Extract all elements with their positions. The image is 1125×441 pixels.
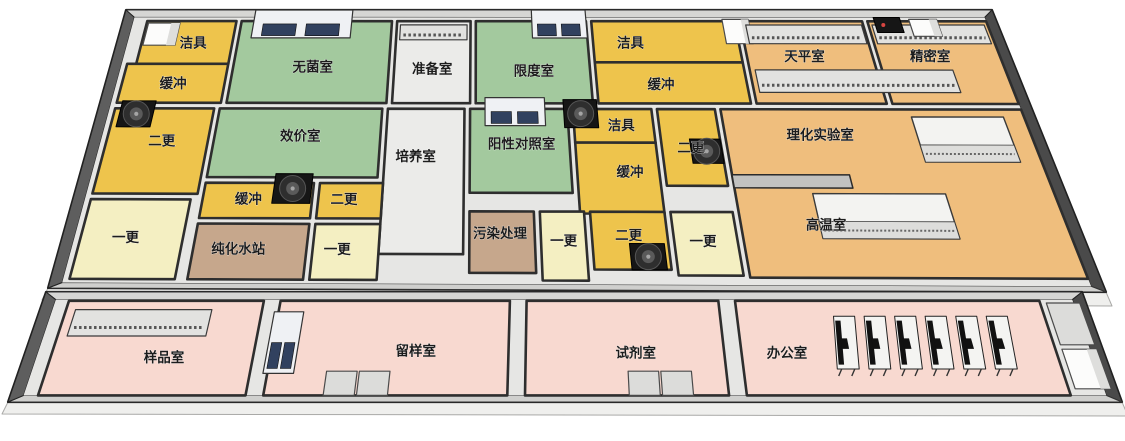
fan-center [291,186,295,190]
room-label-xiandushi: 限度室 [514,63,555,80]
room-label-ergeng-2: 二更 [677,140,705,156]
room-label-jieju-2: 洁具 [617,35,645,52]
room-jieju-2 [591,21,743,62]
room-label-huanchong-1: 缓冲 [160,75,187,92]
equip-bench-hatched [400,25,468,40]
outer-wall-top-annex [46,292,1082,300]
room-label-yigeng-3: 一更 [550,233,578,249]
room-label-shijishi: 试剂室 [616,345,657,362]
equip-bench-hatched [67,310,212,336]
room-label-peiyangshi: 培养室 [395,148,436,165]
room-label-ergeng-1: 二更 [148,134,175,150]
room-label-chunhuashuizhan: 纯化水站 [211,241,265,258]
floorplan-canvas: 洁具缓冲无菌室准备室限度室洁具缓冲天平室精密室二更效价室培养室阳性对照室洁具缓冲… [0,0,1125,441]
room-label-tianpingshi: 天平室 [784,48,825,65]
room-label-huanchong-2: 缓冲 [648,76,675,93]
floorplan-svg: 洁具缓冲无菌室准备室限度室洁具缓冲天平室精密室二更效价室培养室阳性对照室洁具缓冲… [0,0,1125,441]
room-label-jingmishi: 精密室 [910,48,951,65]
room-ergeng-1 [92,108,214,194]
room-label-bangongshi: 办公室 [767,345,808,362]
room-label-huanchong-3: 缓冲 [617,164,644,181]
room-label-lihuashiyanshi: 理化实验室 [786,127,854,144]
room-label-wujunshi: 无菌室 [292,59,334,76]
room-label-ergeng-4: 二更 [615,228,643,244]
room-label-yigeng-1: 一更 [112,230,139,246]
room-label-huanchong-4: 缓冲 [235,191,262,208]
instrument-indicator-light [881,23,885,27]
fan-center [134,112,138,116]
room-label-yigeng-4: 一更 [690,234,718,250]
fan-center [579,112,583,116]
room-label-liuyangshi: 留样室 [396,342,437,359]
partition-wall [732,175,853,188]
room-wuranchuli [469,211,536,273]
room-label-zhunbeishi: 准备室 [412,61,453,78]
equip-bench-hatched [746,25,867,44]
room-label-jieju-3: 洁具 [608,117,635,134]
cabinet-front-panel [491,112,512,124]
fan-center [646,255,650,259]
cabinet-front-panel [561,24,580,36]
room-label-yigeng-2: 一更 [324,242,351,258]
cabinet-front-panel [517,112,538,124]
room-label-jieju-1: 洁具 [180,34,207,51]
room-label-free-0: 高温室 [806,216,847,233]
equip-gray-cabinet [661,371,694,395]
equip-gray-cabinet [356,371,390,395]
room-label-xiaojiashi: 效价室 [280,127,321,144]
room-label-yangxingduizhaoshi: 阳性对照室 [488,135,556,152]
cabinet-front-panel [305,24,340,36]
equip-gray-cabinet [323,371,357,395]
equip-instrument-black [873,18,904,33]
cabinet-front-panel [261,24,296,36]
fan-center [705,149,709,153]
equip-bench-hatched [755,70,961,93]
equip-gray-cabinet [628,371,660,395]
cabinet-front-panel [537,24,556,36]
building-slab-annex [2,402,1125,416]
room-label-yangpinshi: 样品室 [144,349,185,366]
room-label-ergeng-3: 二更 [331,192,358,208]
room-peiyangshi [378,109,464,255]
room-label-wuranchuli: 污染处理 [473,225,527,242]
